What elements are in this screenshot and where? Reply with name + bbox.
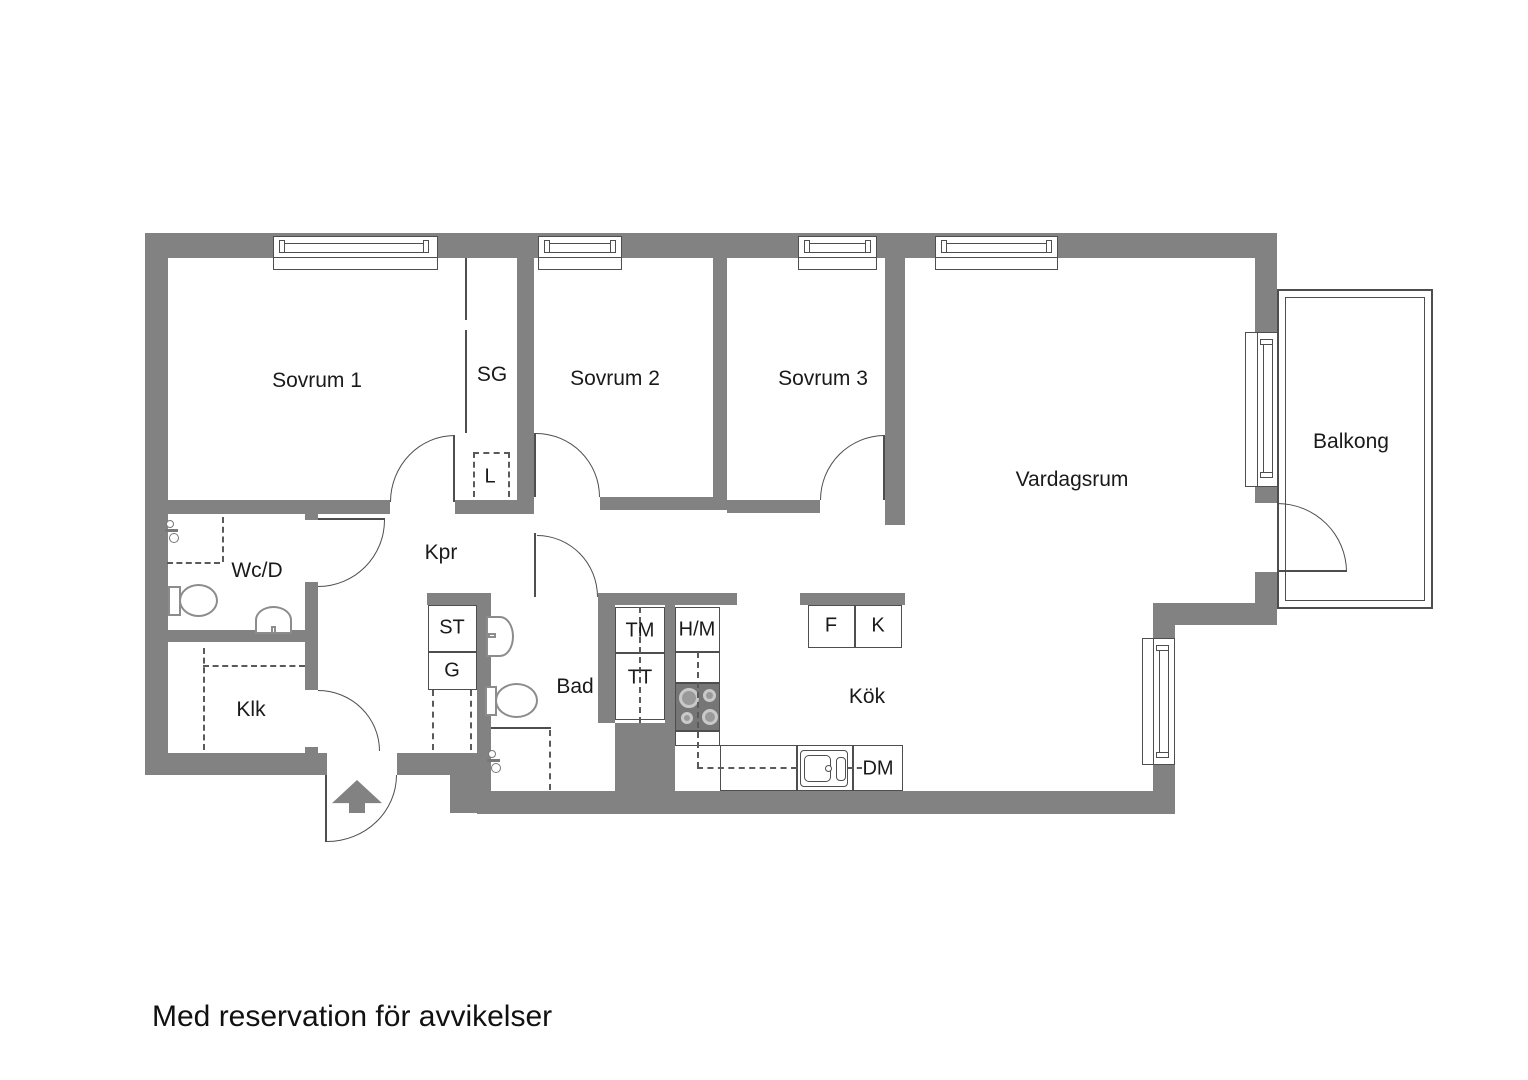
door-leaf xyxy=(453,435,455,502)
shower-mixer-icon xyxy=(169,533,179,543)
wall xyxy=(800,593,905,605)
wall xyxy=(598,593,615,723)
wall xyxy=(1153,765,1175,805)
dashed-guide xyxy=(697,652,699,768)
disclaimer-text: Med reservation för avvikelser xyxy=(152,1000,552,1034)
window-sill xyxy=(538,257,622,270)
room-label-sovrum1: Sovrum 1 xyxy=(272,369,362,393)
fixture-label-hm: H/M xyxy=(679,619,716,642)
wall xyxy=(598,593,737,605)
window-mullion xyxy=(423,240,429,253)
wall xyxy=(455,500,534,514)
door-leaf xyxy=(325,775,327,842)
fixture-label-l: L xyxy=(484,466,495,489)
shower-screen-line xyxy=(491,727,551,729)
room-label-bad: Bad xyxy=(556,675,593,699)
faucet-icon xyxy=(488,633,496,638)
room-label-wcd: Wc/D xyxy=(231,559,282,583)
burner-icon xyxy=(703,689,716,702)
window-glazing xyxy=(284,243,428,253)
wall xyxy=(305,747,318,755)
fixture-label-st: ST xyxy=(439,617,465,640)
faucet-icon xyxy=(271,626,276,634)
dashed-guide xyxy=(203,648,205,750)
wall xyxy=(1255,258,1277,332)
window-glazing xyxy=(808,243,867,253)
wall xyxy=(665,602,675,723)
fixture-label-f: F xyxy=(825,615,837,638)
wall xyxy=(145,753,327,775)
dashed-guide xyxy=(549,730,551,790)
dashed-guide xyxy=(697,767,797,769)
wall xyxy=(145,258,168,775)
burner-icon xyxy=(702,709,718,725)
fixture-label-k: K xyxy=(871,615,884,638)
wall xyxy=(1255,572,1277,625)
door-arc-wcd xyxy=(318,520,385,587)
wall xyxy=(168,500,390,514)
window-glazing xyxy=(945,243,1048,253)
shower-mixer-icon xyxy=(487,759,500,762)
window-mullion xyxy=(1156,752,1169,758)
toilet-icon xyxy=(179,584,218,617)
window-mullion xyxy=(1260,339,1273,345)
floor-plan: Sovrum 1 SG Sovrum 2 Sovrum 3 Vardagsrum… xyxy=(0,0,1528,1080)
fixture-label-dm: DM xyxy=(862,758,893,781)
shower-mixer-icon xyxy=(491,763,501,773)
window-mullion xyxy=(941,240,947,253)
wall xyxy=(427,593,491,605)
shower-mixer-icon xyxy=(166,520,174,528)
shower-mixer-icon xyxy=(488,750,496,758)
window-sill xyxy=(798,257,877,270)
dashed-guide xyxy=(203,665,305,667)
window-mullion xyxy=(1046,240,1052,253)
window-mullion xyxy=(279,240,285,253)
window-mullion xyxy=(610,240,616,253)
wall xyxy=(713,258,727,510)
wall xyxy=(885,258,905,525)
wall xyxy=(727,500,820,513)
room-label-sg: SG xyxy=(477,363,507,387)
dashed-guide xyxy=(167,562,220,564)
window-mullion xyxy=(804,240,810,253)
door-leaf xyxy=(318,518,385,520)
partition-line xyxy=(465,330,467,433)
window-mullion xyxy=(1260,472,1273,478)
window-glazing xyxy=(1263,344,1273,475)
room-label-vardagsrum: Vardagsrum xyxy=(1016,468,1129,492)
window-glazing xyxy=(548,243,612,253)
door-leaf xyxy=(1277,570,1347,572)
window-sill xyxy=(935,257,1058,270)
wall xyxy=(477,791,1175,814)
burner-icon xyxy=(681,712,693,724)
room-label-kok: Kök xyxy=(849,685,885,709)
wall xyxy=(517,258,534,514)
window-mullion xyxy=(865,240,871,253)
window-mullion xyxy=(544,240,550,253)
partition-line xyxy=(465,258,467,320)
shower-mixer-icon xyxy=(165,529,178,532)
door-leaf xyxy=(534,533,536,597)
burner-icon xyxy=(679,688,699,708)
door-arc-sovrum3 xyxy=(820,435,885,500)
door-arc-bad xyxy=(537,535,598,597)
fixture-label-tm: TM xyxy=(626,620,655,643)
room-label-klk: Klk xyxy=(236,698,265,722)
wall xyxy=(305,582,318,642)
room-label-sovrum3: Sovrum 3 xyxy=(778,367,868,391)
toilet-icon xyxy=(495,683,538,718)
room-label-kpr: Kpr xyxy=(425,541,458,565)
door-arc-klk xyxy=(318,690,380,751)
window-glazing xyxy=(1159,650,1169,753)
fixture-label-g: G xyxy=(444,660,460,683)
kitchen-sink-basin xyxy=(836,757,846,781)
fixture-label-tt: TT xyxy=(628,667,652,690)
room-label-sovrum2: Sovrum 2 xyxy=(570,367,660,391)
faucet-icon xyxy=(825,765,832,772)
window-sill xyxy=(273,257,438,270)
door-arc-sovrum1 xyxy=(390,435,455,502)
room-label-balkong: Balkong xyxy=(1313,430,1389,454)
dashed-guide xyxy=(470,690,472,750)
door-leaf xyxy=(534,433,536,497)
window-mullion xyxy=(1156,645,1169,651)
wall xyxy=(305,642,318,690)
dashed-guide xyxy=(848,767,862,769)
dashed-guide xyxy=(222,517,224,562)
door-leaf xyxy=(883,435,885,500)
wall xyxy=(600,497,713,510)
wall xyxy=(1255,487,1277,503)
wall xyxy=(615,723,675,791)
door-arc-sovrum2 xyxy=(536,433,600,497)
dashed-guide xyxy=(432,690,434,750)
